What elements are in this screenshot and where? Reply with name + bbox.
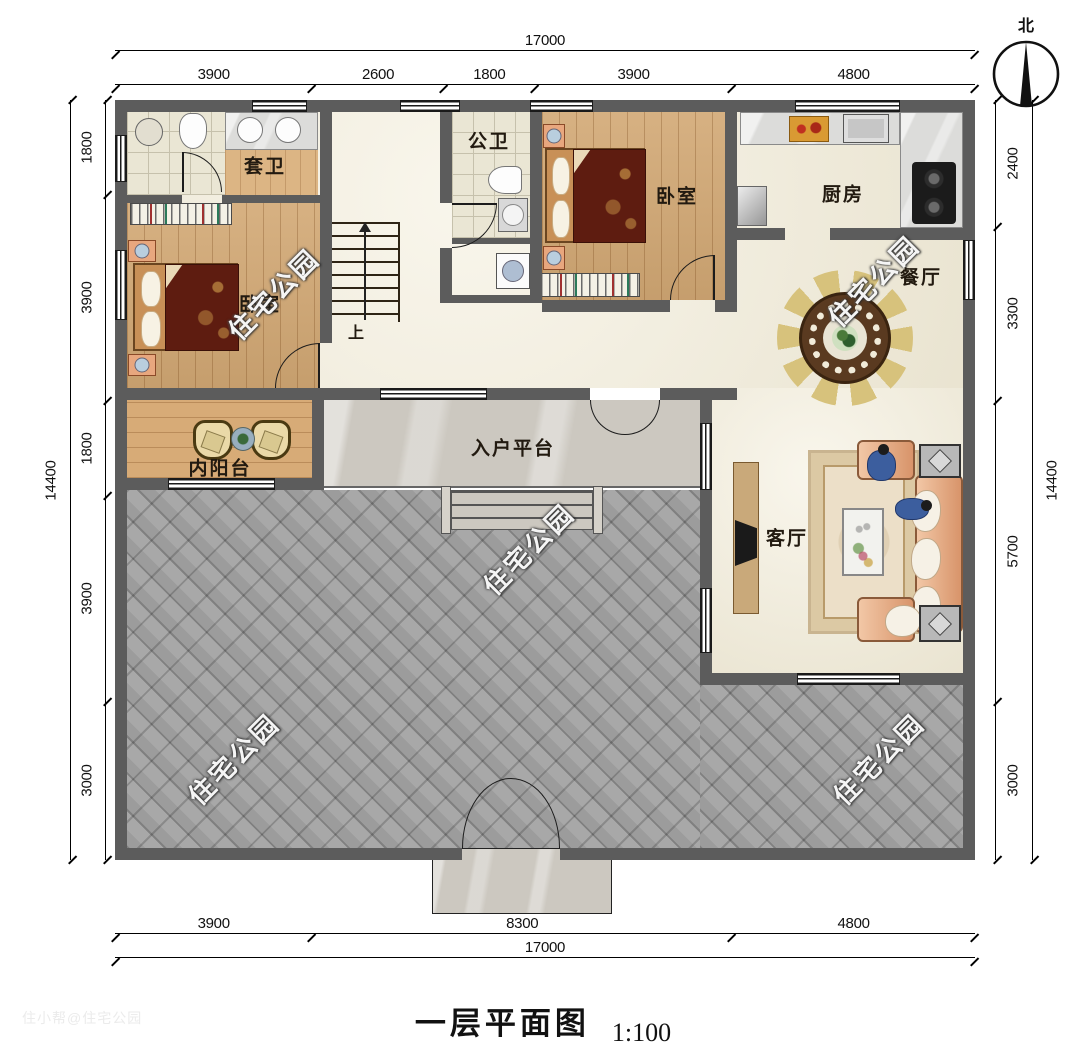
room-label-entry-platform: 入户平台 xyxy=(471,434,555,461)
coffee-table xyxy=(842,508,884,576)
wall-hall-south xyxy=(115,388,380,400)
dim-segment: 3900 xyxy=(70,496,105,702)
window xyxy=(963,240,975,300)
door-leaf xyxy=(713,255,715,300)
nightstand xyxy=(543,124,565,148)
dim-right-segments: 2400330057003000 xyxy=(995,100,1031,860)
pillow xyxy=(552,157,570,195)
compass: 北 xyxy=(988,12,1064,108)
stairs-arrow-head xyxy=(359,222,371,232)
wall-bedroom-left-east xyxy=(320,100,332,343)
title-block: 一层平面图 1:100 xyxy=(0,998,1080,1048)
door-leaf xyxy=(182,152,184,192)
window xyxy=(700,588,712,653)
page-title: 一层平面图 xyxy=(409,998,596,1048)
nightstand xyxy=(128,354,156,376)
bed xyxy=(133,263,238,351)
side-table-pattern xyxy=(928,449,952,473)
compass-icon xyxy=(990,36,1062,110)
dim-top-total: 17000 xyxy=(115,24,975,51)
wall-right xyxy=(963,100,975,860)
washing-machine-icon xyxy=(496,253,530,289)
sink-icon xyxy=(275,117,301,143)
pillow xyxy=(141,271,161,307)
wall-hall-south xyxy=(487,388,590,400)
dim-segment: 3900 xyxy=(535,52,732,84)
washbasin-cabinet xyxy=(498,198,528,232)
wall-hall-south xyxy=(660,388,737,400)
balcony-table-icon xyxy=(231,427,255,451)
dim-segment: 3300 xyxy=(996,227,1031,401)
wall-closet-south xyxy=(440,295,542,303)
stairs-up-label: 上 xyxy=(348,319,364,343)
cutting-board-icon xyxy=(789,116,829,142)
dim-segment: 2600 xyxy=(312,52,444,84)
shower-icon xyxy=(135,118,163,146)
window xyxy=(115,135,127,182)
fridge-icon xyxy=(737,186,767,226)
bed xyxy=(545,148,645,243)
dim-segment: 3000 xyxy=(996,702,1031,860)
door-leaf xyxy=(318,343,320,388)
sink-icon xyxy=(237,117,263,143)
room-label-kitchen: 厨房 xyxy=(822,180,864,207)
window xyxy=(115,250,127,320)
side-table xyxy=(919,605,961,642)
window xyxy=(252,100,307,112)
stove-icon xyxy=(912,162,956,224)
dim-segment: 14400 xyxy=(1033,100,1071,860)
room-label-bedroom-top: 卧室 xyxy=(656,182,698,209)
kitchen-sink-icon xyxy=(843,114,889,143)
wall-ensuite-south xyxy=(127,195,182,203)
wall-publicbath-west xyxy=(440,100,452,203)
courtyard-right xyxy=(700,685,963,848)
wall-balcony-south xyxy=(275,478,324,490)
pillow xyxy=(141,311,161,347)
wall-living-south xyxy=(700,673,797,685)
dim-segment: 1800 xyxy=(70,100,105,195)
entry-steps-rail xyxy=(593,486,603,534)
washing-machine-drum xyxy=(502,260,524,282)
dim-right-total: 14400 xyxy=(1032,100,1071,860)
sofa-cushion xyxy=(885,605,921,637)
room-label-balcony: 内阳台 xyxy=(188,454,251,481)
dim-bottom-total: 17000 xyxy=(115,933,975,958)
person-figure-head xyxy=(878,444,889,455)
wall-bottom xyxy=(560,848,975,860)
wall-living-south xyxy=(900,673,963,685)
wall-bedroom-top-south xyxy=(542,300,670,312)
toilet-icon xyxy=(179,113,207,149)
dim-segment: 3900 xyxy=(115,52,312,84)
credit-watermark: 住小帮@住宅公园 xyxy=(22,1008,142,1028)
plan: 上 xyxy=(115,100,975,860)
room-label-living: 客厅 xyxy=(766,524,808,551)
wall-bedroom-top-south xyxy=(715,300,737,312)
dim-segment: 3900 xyxy=(115,903,312,933)
compass-north-label: 北 xyxy=(988,12,1064,36)
washbasin-icon xyxy=(502,204,524,226)
wardrobe-shelf xyxy=(540,273,640,297)
dim-segment: 2400 xyxy=(996,100,1031,227)
dim-segment: 3900 xyxy=(70,195,105,401)
dim-segment: 4800 xyxy=(732,903,975,933)
wall-balcony-east xyxy=(312,400,324,490)
wall-ensuite-south xyxy=(222,195,320,203)
dim-segment: 1800 xyxy=(70,401,105,496)
wall-publicbath-east xyxy=(530,100,542,300)
window xyxy=(795,100,900,112)
dim-segment: 17000 xyxy=(115,933,975,957)
toilet-icon xyxy=(488,166,522,194)
blanket xyxy=(165,264,239,351)
wardrobe-shelf xyxy=(130,203,232,225)
blanket xyxy=(573,149,646,243)
dim-segment: 14400 xyxy=(32,100,70,860)
wall-bottom xyxy=(115,848,462,860)
dim-segment: 5700 xyxy=(996,401,1031,702)
dim-segment: 1800 xyxy=(444,52,535,84)
room-label-ensuite-bath: 套卫 xyxy=(244,152,286,179)
room-label-public-bath: 公卫 xyxy=(468,127,510,154)
pillow xyxy=(552,200,570,238)
balcony-chair xyxy=(251,420,291,460)
person-figure-head xyxy=(921,500,932,511)
wall-kitchen-south xyxy=(737,228,785,240)
window xyxy=(380,388,487,400)
dim-top-segments: 39002600180039004800 xyxy=(115,52,975,85)
dim-segment: 4800 xyxy=(732,52,975,84)
nightstand xyxy=(128,240,156,262)
window xyxy=(797,673,900,685)
stairs-arrow-line xyxy=(364,230,366,320)
wall-bedroom-top-east xyxy=(725,100,737,312)
sofa-cushion xyxy=(911,538,941,580)
window xyxy=(530,100,593,112)
entry-steps-rail xyxy=(441,486,451,534)
dim-left-total: 14400 xyxy=(32,100,71,860)
dim-segment: 3000 xyxy=(70,702,105,860)
side-table xyxy=(919,444,961,478)
side-table-pattern xyxy=(928,611,952,635)
window xyxy=(700,423,712,490)
dim-left-segments: 18003900180039003000 xyxy=(70,100,106,860)
door-leaf xyxy=(452,203,497,205)
floor-plan-sheet: 17000 39002600180039004800 390083004800 … xyxy=(0,0,1080,1048)
drawing-scale: 1:100 xyxy=(612,1018,671,1048)
window xyxy=(400,100,460,112)
dim-segment: 17000 xyxy=(115,24,975,50)
nightstand xyxy=(543,246,565,270)
wall-balcony-south xyxy=(115,478,168,490)
